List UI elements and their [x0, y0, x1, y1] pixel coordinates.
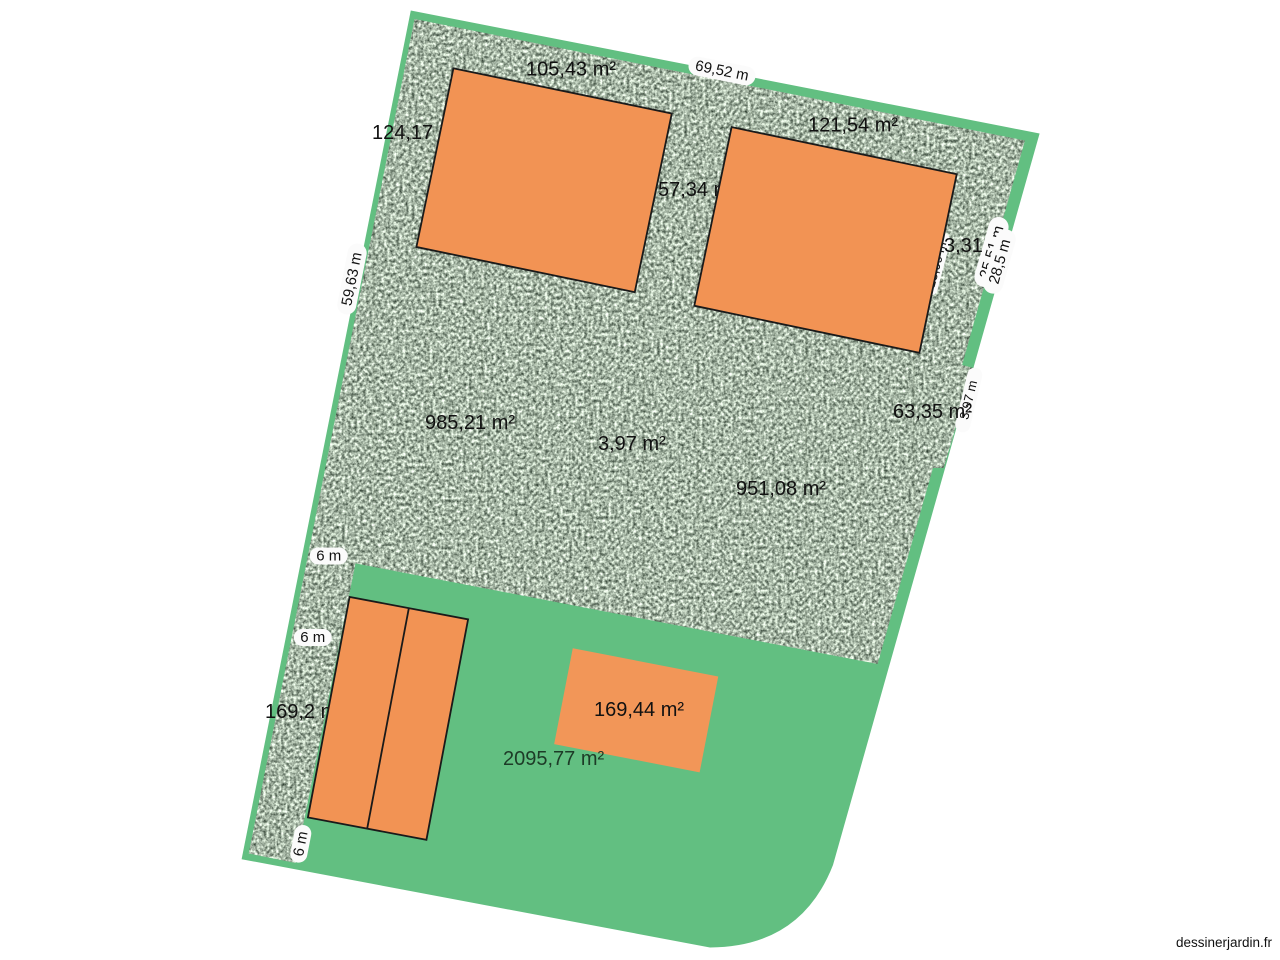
- svg-text:3,31: 3,31: [944, 235, 983, 257]
- svg-text:dessinerjardin.fr: dessinerjardin.fr: [1176, 935, 1273, 950]
- svg-text:105,43 m²: 105,43 m²: [526, 59, 616, 81]
- svg-text:169,44 m²: 169,44 m²: [594, 699, 684, 721]
- svg-text:121,54 m²: 121,54 m²: [808, 115, 898, 137]
- svg-text:63,35 m²: 63,35 m²: [893, 401, 972, 423]
- svg-text:3,97 m²: 3,97 m²: [598, 433, 666, 455]
- svg-text:6 m: 6 m: [300, 629, 325, 646]
- svg-text:6 m: 6 m: [316, 548, 341, 565]
- svg-text:2095,77 m²: 2095,77 m²: [503, 748, 605, 770]
- svg-text:951,08 m²: 951,08 m²: [736, 478, 826, 500]
- svg-text:985,21 m²: 985,21 m²: [425, 412, 515, 434]
